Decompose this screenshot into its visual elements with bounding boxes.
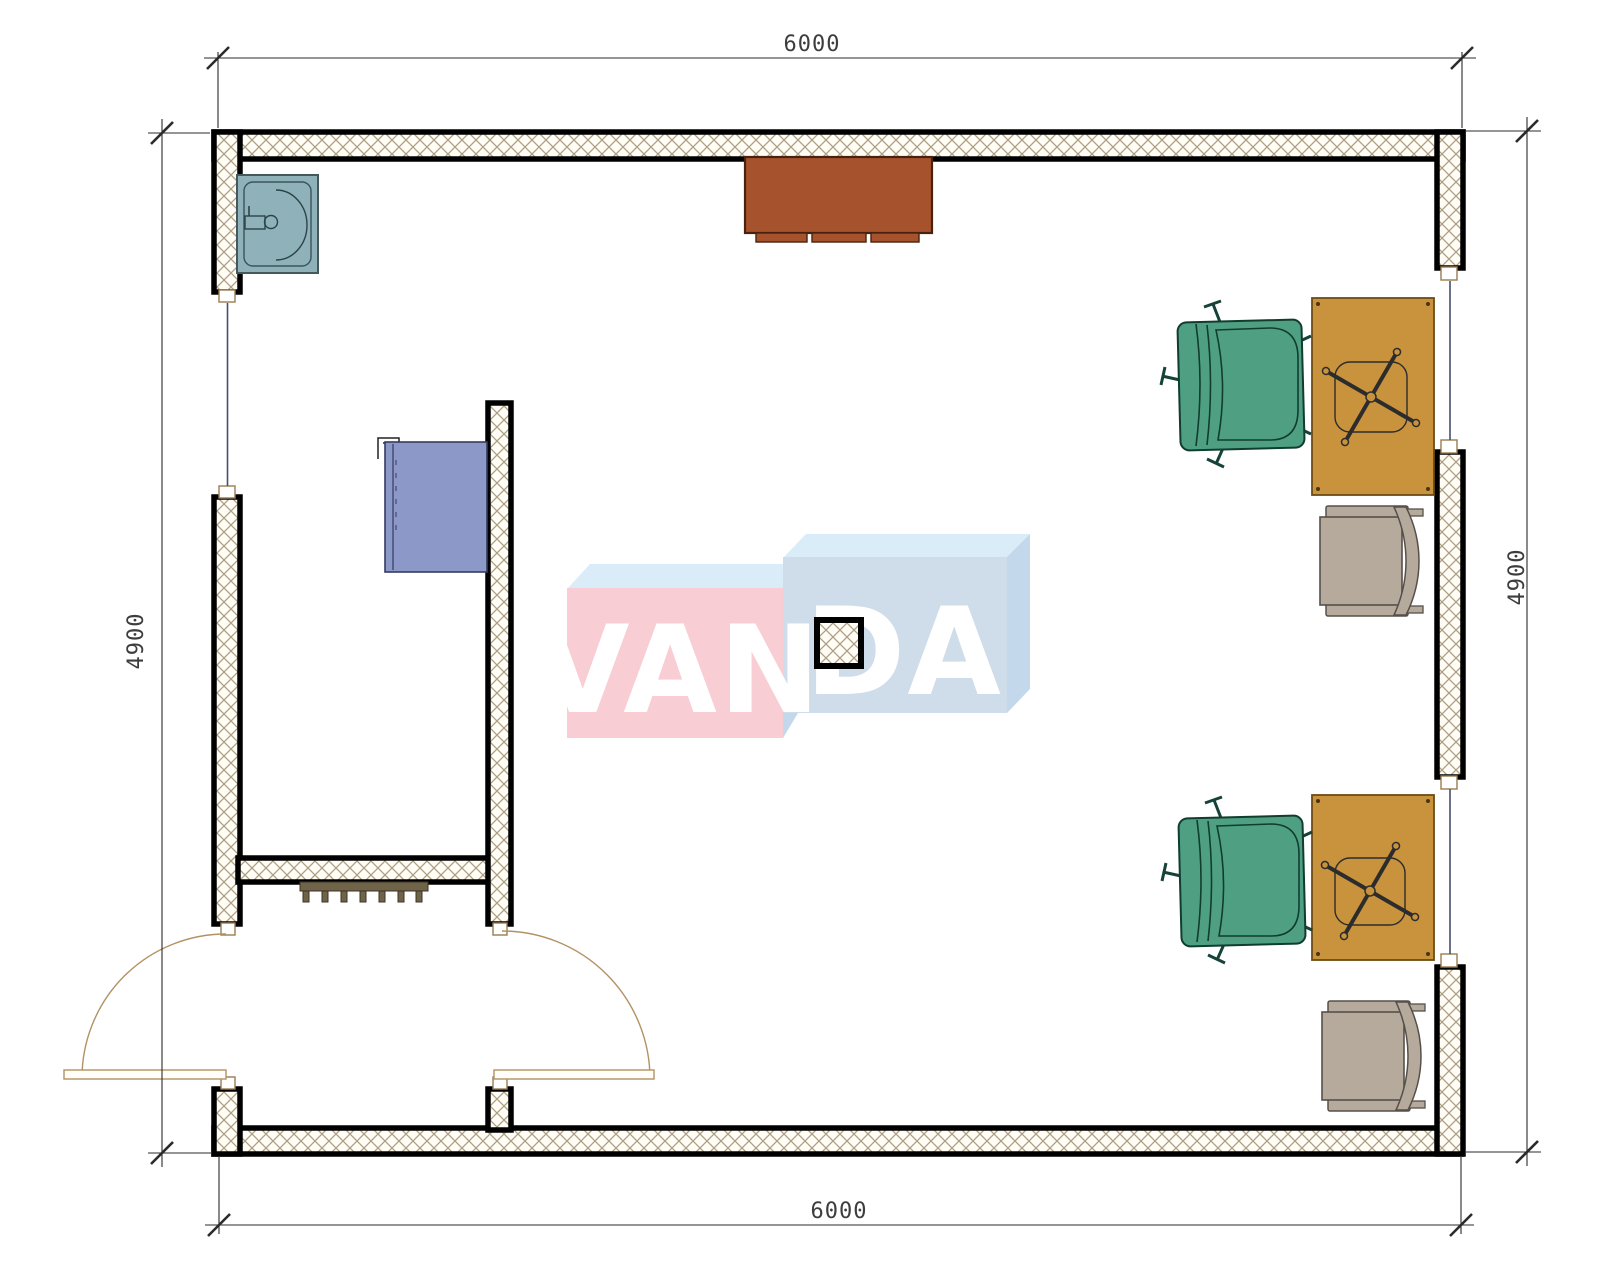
door-leaf-left (64, 1070, 226, 1079)
hinge-left-door-top (221, 923, 235, 935)
chair-seat (1322, 1012, 1404, 1100)
sill-left-window-bottom (219, 486, 235, 498)
partition-vertical (488, 403, 511, 924)
dimension-label-top: 6000 (784, 32, 841, 57)
radiator (300, 882, 428, 902)
radiator-fin (341, 891, 347, 902)
radiator-bar (300, 882, 428, 891)
wall-left-door-stub (214, 1089, 240, 1154)
watermark-text-van: VAN (536, 600, 822, 741)
wall-bottom (214, 1128, 1461, 1154)
chair-seat (1216, 328, 1298, 440)
column (817, 620, 861, 666)
dimension-label-left: 4900 (124, 613, 149, 670)
sideboard-body (385, 442, 487, 572)
sill-right-window1-top (1441, 267, 1457, 280)
cabinet-body (745, 157, 932, 233)
cabinet-foot (756, 233, 807, 242)
radiator-fin (360, 891, 366, 902)
sill-left-window-top (219, 290, 235, 302)
storage-cabinet (745, 157, 932, 242)
hinge-right-door-top (493, 923, 507, 935)
office-chair-upper (1161, 301, 1311, 467)
cabinet-foot (812, 233, 866, 242)
sink-faucet-base (245, 216, 265, 229)
sill-right-window2-top (1441, 776, 1457, 789)
radiator-fin (379, 891, 385, 902)
entry-doors (64, 931, 654, 1079)
floor-plan-page: VAN DA (0, 0, 1600, 1280)
blue-sideboard (378, 438, 487, 572)
wall-right-lower (1437, 967, 1463, 1154)
dimension-label-right: 4900 (1505, 549, 1530, 606)
sill-right-window1-bottom (1441, 440, 1457, 453)
partition-horizontal (238, 858, 490, 882)
vanda-watermark: VAN DA (536, 534, 1030, 741)
dimension-label-bottom: 6000 (811, 1199, 868, 1224)
wall-right-middle (1437, 452, 1463, 777)
dimension-top: 6000 (204, 32, 1476, 128)
office-chair-lower (1162, 797, 1312, 963)
radiator-fin (322, 891, 328, 902)
chair-seat (1217, 824, 1299, 936)
desk-upper (1295, 298, 1447, 495)
watermark-blue-top-face (783, 534, 1030, 558)
dimension-bottom: 6000 (205, 1156, 1474, 1236)
watermark-blue-side-face (1007, 534, 1030, 713)
cabinet-foot (871, 233, 919, 242)
guest-chair-upper (1320, 506, 1423, 616)
door-leaf-right (494, 1070, 654, 1079)
radiator-fin (398, 891, 404, 902)
sill-right-window2-bottom (1441, 954, 1457, 967)
dimension-right: 4900 (1466, 117, 1541, 1166)
chair-seat (1320, 517, 1402, 605)
wall-right-upper (1437, 132, 1463, 268)
guest-chair-lower (1322, 1001, 1425, 1111)
radiator-fin (303, 891, 309, 902)
radiator-fin (416, 891, 422, 902)
floor-plan-canvas: VAN DA (0, 0, 1600, 1280)
desk-lower (1294, 795, 1446, 967)
dimension-left: 4900 (124, 119, 212, 1167)
sink (237, 175, 318, 273)
desk-top (1312, 795, 1434, 960)
partition-door-stub (488, 1089, 511, 1130)
door-swing-arc-right (502, 931, 650, 1079)
watermark-pink-top-face (567, 564, 806, 589)
wall-top (214, 132, 1463, 159)
door-swing-arc-left (82, 934, 226, 1078)
